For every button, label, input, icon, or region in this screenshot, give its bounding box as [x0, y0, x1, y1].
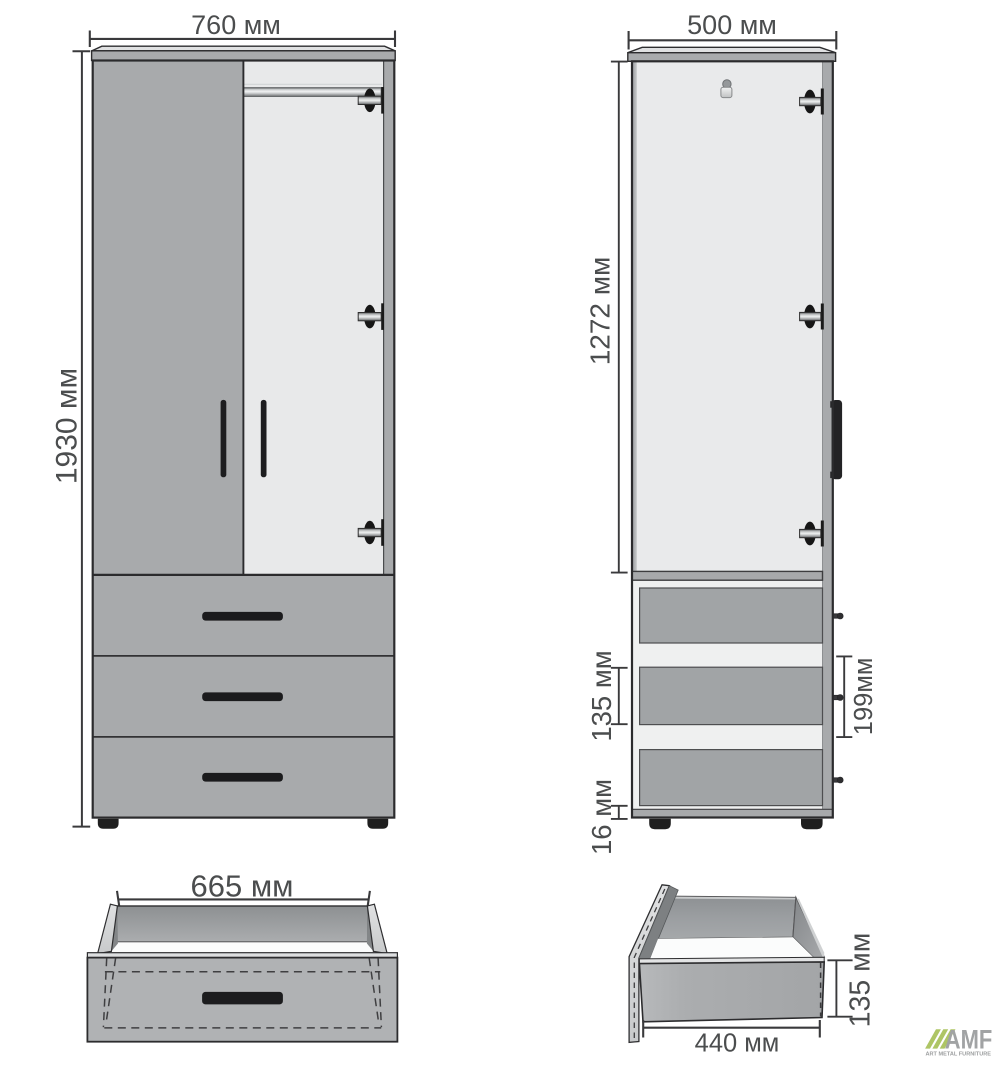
svg-text:1930 мм: 1930 мм	[51, 368, 84, 484]
svg-text:500 мм: 500 мм	[687, 10, 777, 40]
svg-text:1272 мм: 1272 мм	[585, 257, 616, 366]
svg-text:16 мм: 16 мм	[586, 779, 617, 855]
svg-text:440 мм: 440 мм	[695, 1029, 780, 1057]
svg-text:135 мм: 135 мм	[845, 933, 877, 1028]
svg-text:665 мм: 665 мм	[191, 869, 294, 904]
svg-text:760 мм: 760 мм	[191, 10, 281, 40]
svg-text:ART METAL FURNITURE: ART METAL FURNITURE	[926, 1051, 992, 1057]
svg-text:135 мм: 135 мм	[586, 650, 617, 741]
svg-text:199мм: 199мм	[850, 658, 878, 736]
svg-text:AMF: AMF	[945, 1024, 993, 1054]
